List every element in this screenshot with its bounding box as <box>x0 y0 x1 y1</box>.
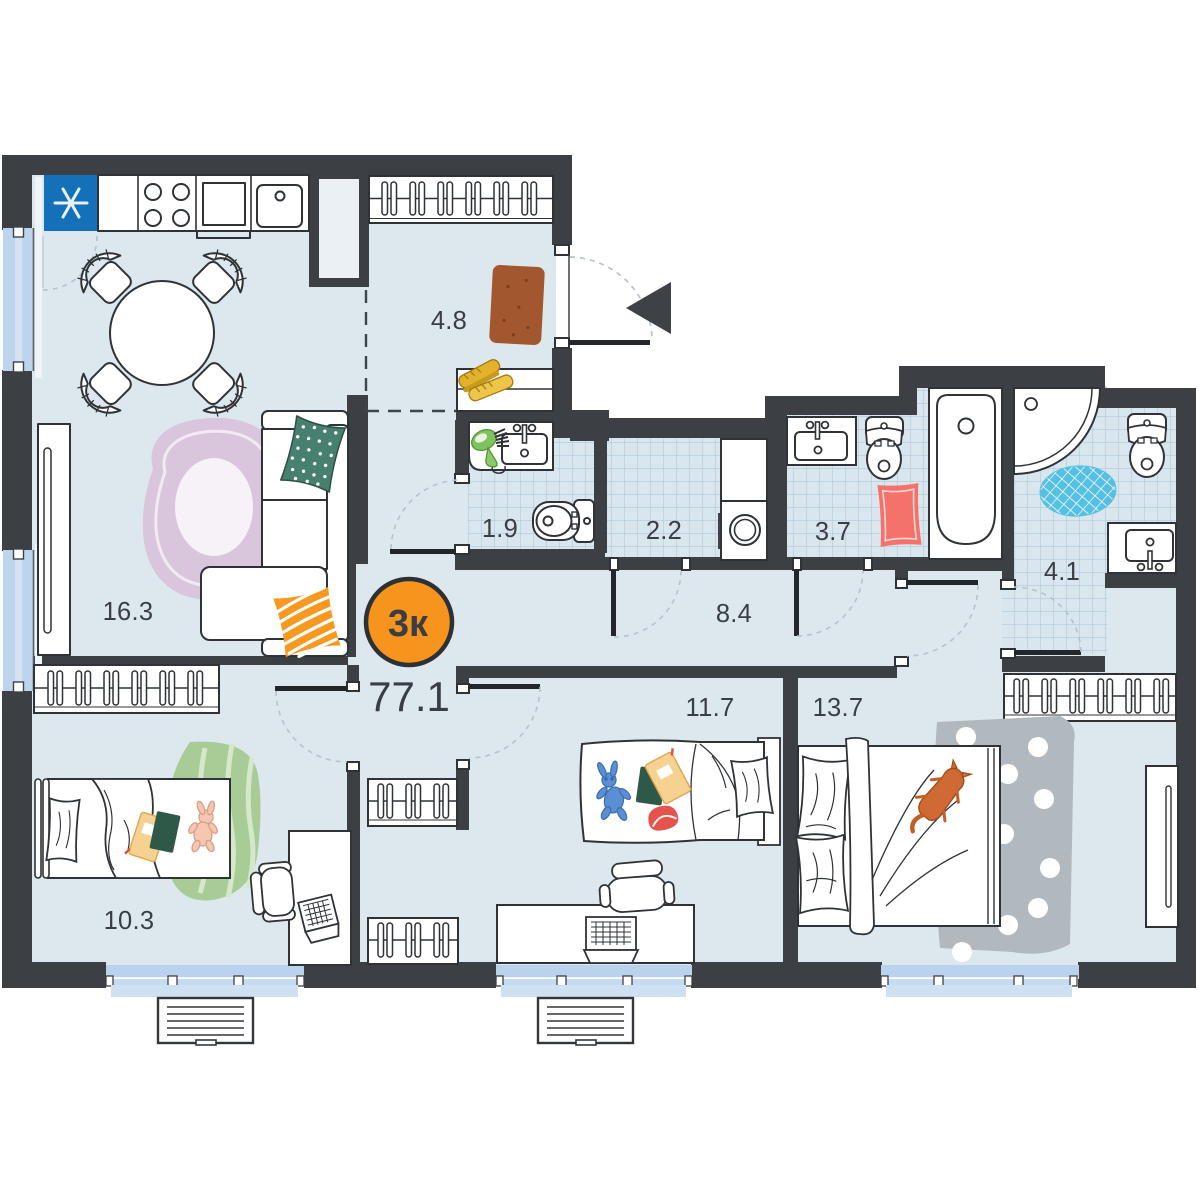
svg-text:3.7: 3.7 <box>815 518 851 546</box>
svg-text:8.4: 8.4 <box>716 600 752 628</box>
svg-text:2.2: 2.2 <box>646 517 682 545</box>
svg-text:11.7: 11.7 <box>686 694 735 722</box>
svg-text:4.1: 4.1 <box>1044 558 1080 586</box>
svg-text:4.8: 4.8 <box>431 307 467 335</box>
svg-text:16.3: 16.3 <box>103 598 154 626</box>
svg-text:1.9: 1.9 <box>482 515 518 543</box>
svg-text:77.1: 77.1 <box>368 673 450 720</box>
svg-text:13.7: 13.7 <box>813 694 864 722</box>
svg-text:3к: 3к <box>388 603 429 645</box>
svg-text:10.3: 10.3 <box>104 907 155 935</box>
